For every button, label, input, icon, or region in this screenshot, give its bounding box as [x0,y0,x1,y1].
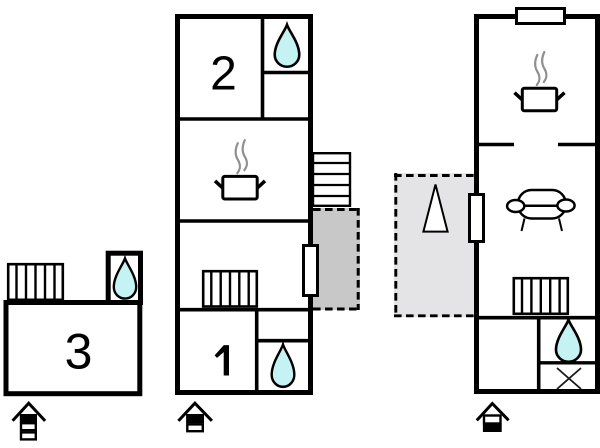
svg-text:3: 3 [65,324,93,380]
svg-text:2: 2 [210,48,237,101]
